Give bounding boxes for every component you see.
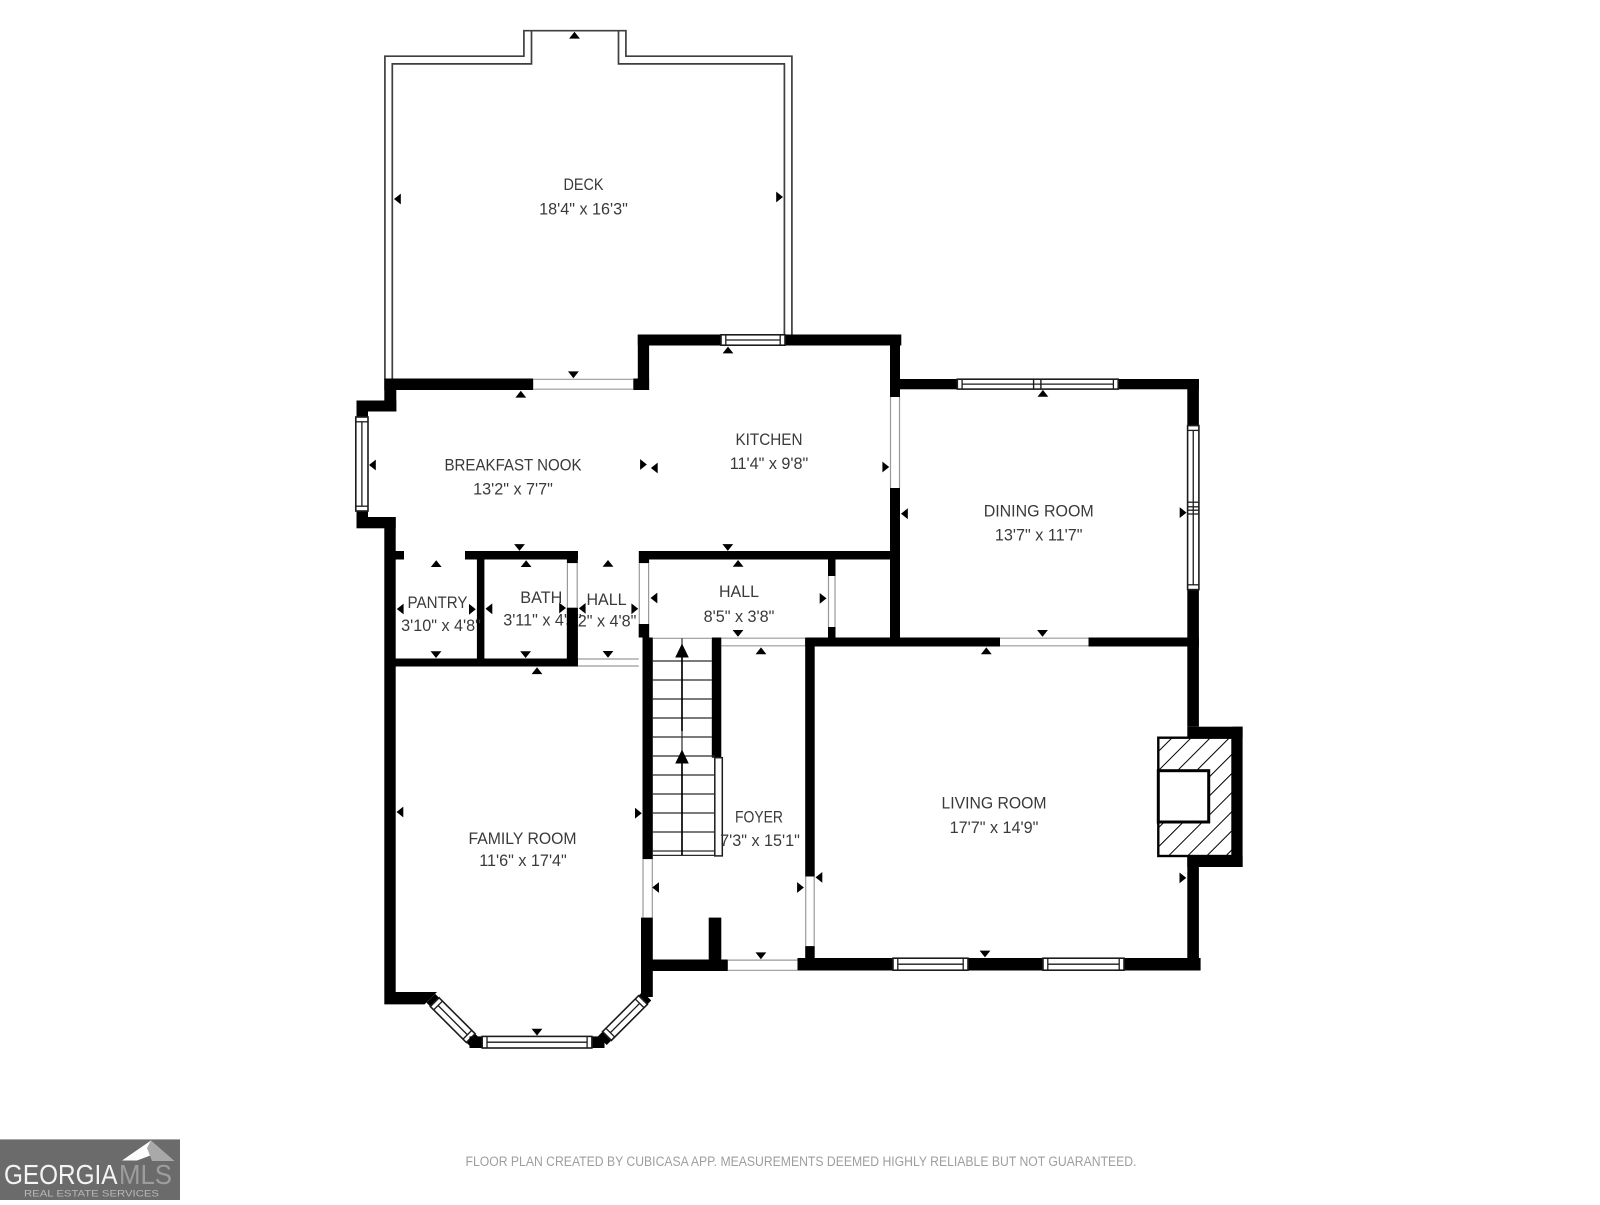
svg-text:BREAKFAST NOOK: BREAKFAST NOOK — [445, 457, 582, 475]
svg-text:FOYER: FOYER — [735, 809, 783, 827]
svg-text:FLOOR PLAN CREATED BY CUBICASA: FLOOR PLAN CREATED BY CUBICASA APP. MEAS… — [466, 1154, 1137, 1169]
svg-text:HALL: HALL — [587, 591, 627, 609]
svg-text:13'2" x 7'7": 13'2" x 7'7" — [473, 481, 553, 499]
svg-text:11'6" x 17'4": 11'6" x 17'4" — [479, 852, 567, 870]
svg-text:13'7" x 11'7": 13'7" x 11'7" — [995, 527, 1083, 545]
svg-text:7'3" x 15'1": 7'3" x 15'1" — [720, 832, 800, 850]
svg-text:PANTRY: PANTRY — [408, 594, 468, 612]
svg-text:BATH: BATH — [520, 589, 562, 607]
svg-text:DINING ROOM: DINING ROOM — [984, 503, 1094, 521]
svg-text:HALL: HALL — [719, 583, 759, 601]
svg-text:GEORGIA: GEORGIA — [4, 1159, 118, 1190]
svg-text:18'4" x 16'3": 18'4" x 16'3" — [539, 201, 628, 219]
svg-text:LIVING ROOM: LIVING ROOM — [942, 795, 1047, 813]
svg-text:MLS: MLS — [119, 1159, 172, 1190]
svg-text:11'4" x 9'8": 11'4" x 9'8" — [730, 455, 809, 473]
svg-text:FAMILY ROOM: FAMILY ROOM — [469, 830, 577, 848]
svg-text:17'7" x 14'9": 17'7" x 14'9" — [950, 819, 1039, 837]
svg-text:3'10" x 4'8": 3'10" x 4'8" — [401, 617, 481, 635]
svg-text:KITCHEN: KITCHEN — [736, 431, 803, 449]
svg-text:DECK: DECK — [564, 176, 604, 194]
svg-text:8'5" x 3'8": 8'5" x 3'8" — [704, 608, 775, 626]
svg-text:REAL ESTATE SERVICES: REAL ESTATE SERVICES — [24, 1189, 159, 1199]
